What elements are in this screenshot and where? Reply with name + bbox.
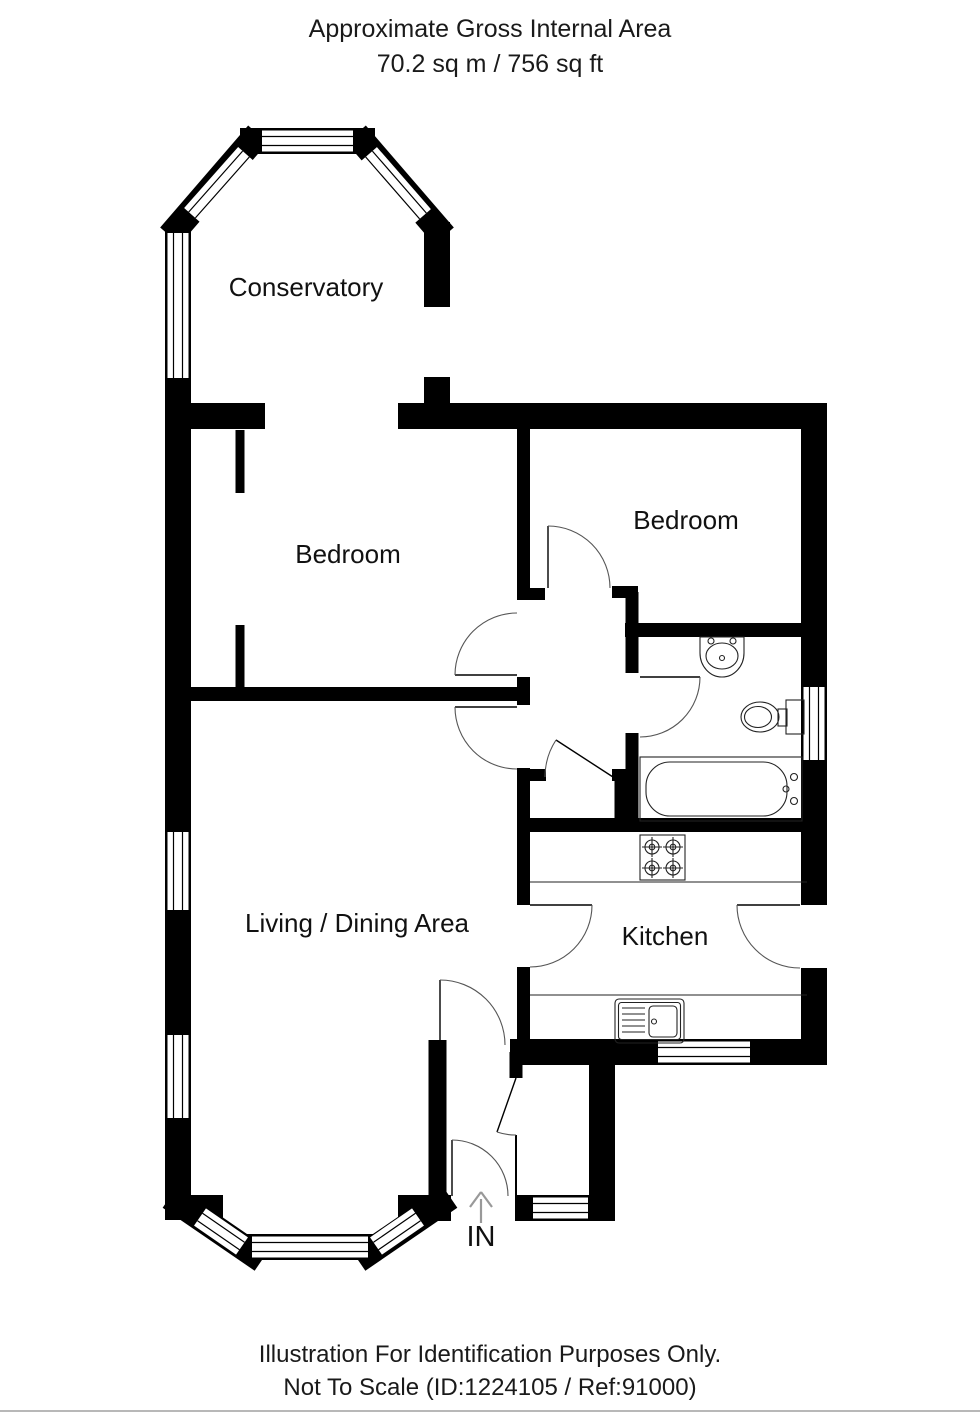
room-label-living-dining: Living / Dining Area: [245, 908, 470, 938]
room-label-bedroom-left: Bedroom: [295, 539, 401, 569]
footer-line1: Illustration For Identification Purposes…: [0, 1338, 980, 1371]
room-label-bedroom-right: Bedroom: [633, 505, 739, 535]
entrance-in-label: IN: [467, 1221, 496, 1253]
floor-plan: Conservatory Bedroom Bedroom Living / Di…: [0, 0, 980, 1417]
bottom-divider: [0, 1410, 980, 1412]
footer-line2: Not To Scale (ID:1224105 / Ref:91000): [0, 1371, 980, 1404]
toilet-icon: [741, 700, 804, 734]
bathroom-fixtures: [640, 637, 804, 821]
floorplan-page: Approximate Gross Internal Area 70.2 sq …: [0, 0, 980, 1417]
basin-icon: [700, 637, 744, 677]
room-label-conservatory: Conservatory: [229, 272, 384, 302]
disclaimer: Illustration For Identification Purposes…: [0, 1338, 980, 1404]
hob-icon: [640, 835, 685, 880]
kitchen-sink-icon: [615, 999, 684, 1043]
entrance-arrow-icon: [470, 1192, 492, 1223]
bathtub-icon: [640, 757, 802, 821]
room-label-kitchen: Kitchen: [622, 921, 709, 951]
